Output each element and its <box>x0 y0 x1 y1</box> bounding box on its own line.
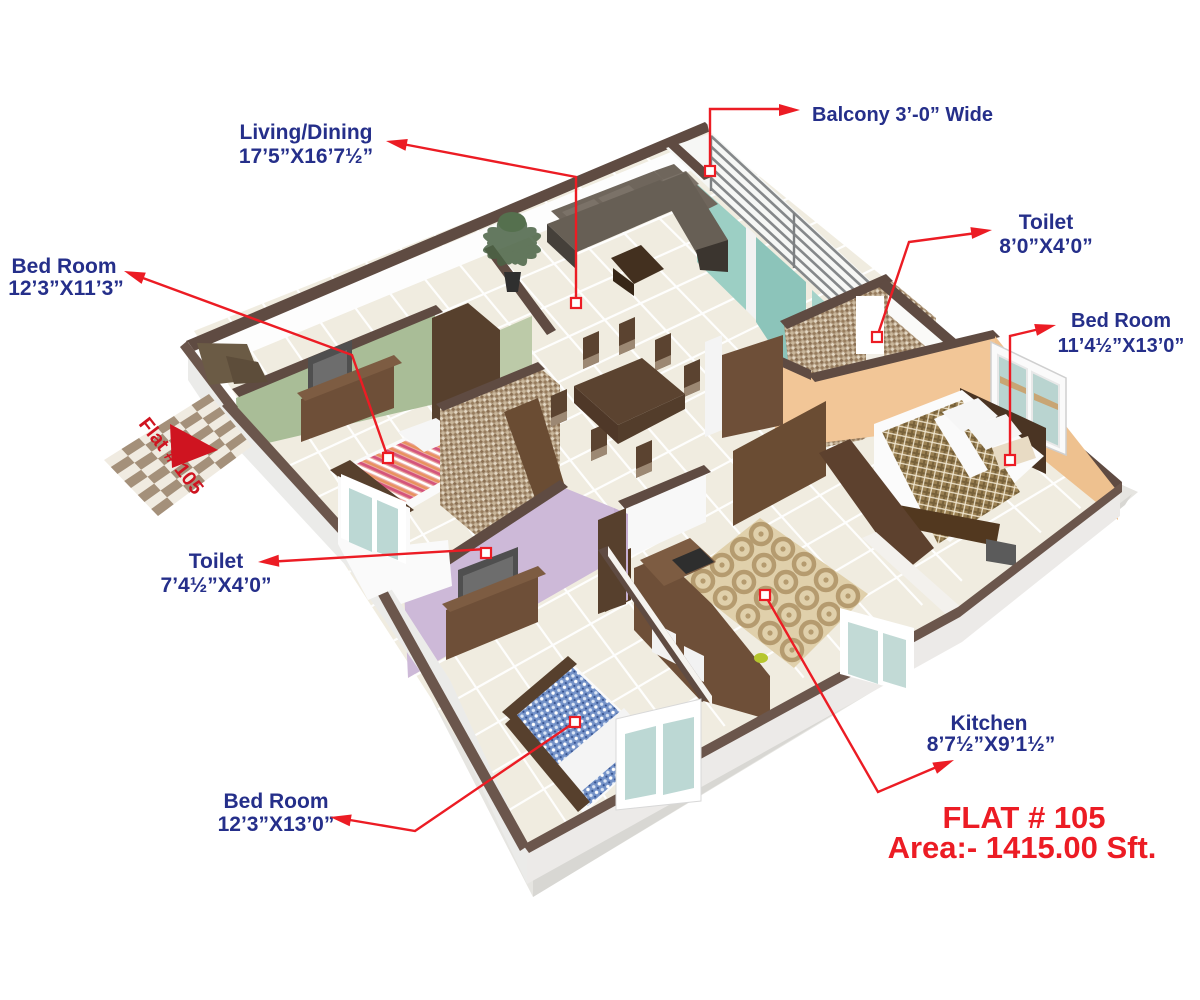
svg-text:Toilet: Toilet <box>1019 211 1073 234</box>
svg-text:Area:- 1415.00 Sft.: Area:- 1415.00 Sft. <box>888 830 1157 865</box>
svg-text:Bed Room: Bed Room <box>1071 310 1171 332</box>
svg-text:12’3”X13’0”: 12’3”X13’0” <box>218 813 335 836</box>
svg-text:8’0”X4’0”: 8’0”X4’0” <box>999 235 1092 258</box>
svg-text:Balcony 3’-0” Wide: Balcony 3’-0” Wide <box>812 104 993 126</box>
svg-text:11’4½”X13’0”: 11’4½”X13’0” <box>1058 335 1185 357</box>
svg-text:Toilet: Toilet <box>189 550 243 573</box>
svg-text:8’7½”X9’1½”: 8’7½”X9’1½” <box>927 733 1055 756</box>
svg-text:7’4½”X4’0”: 7’4½”X4’0” <box>161 574 272 597</box>
svg-text:12’3”X11’3”: 12’3”X11’3” <box>8 277 124 300</box>
svg-text:Bed Room: Bed Room <box>12 255 117 278</box>
svg-text:Kitchen: Kitchen <box>950 712 1027 735</box>
svg-text:Living/Dining: Living/Dining <box>240 121 373 144</box>
svg-text:Bed Room: Bed Room <box>224 790 329 813</box>
svg-text:17’5”X16’7½”: 17’5”X16’7½” <box>239 145 373 168</box>
